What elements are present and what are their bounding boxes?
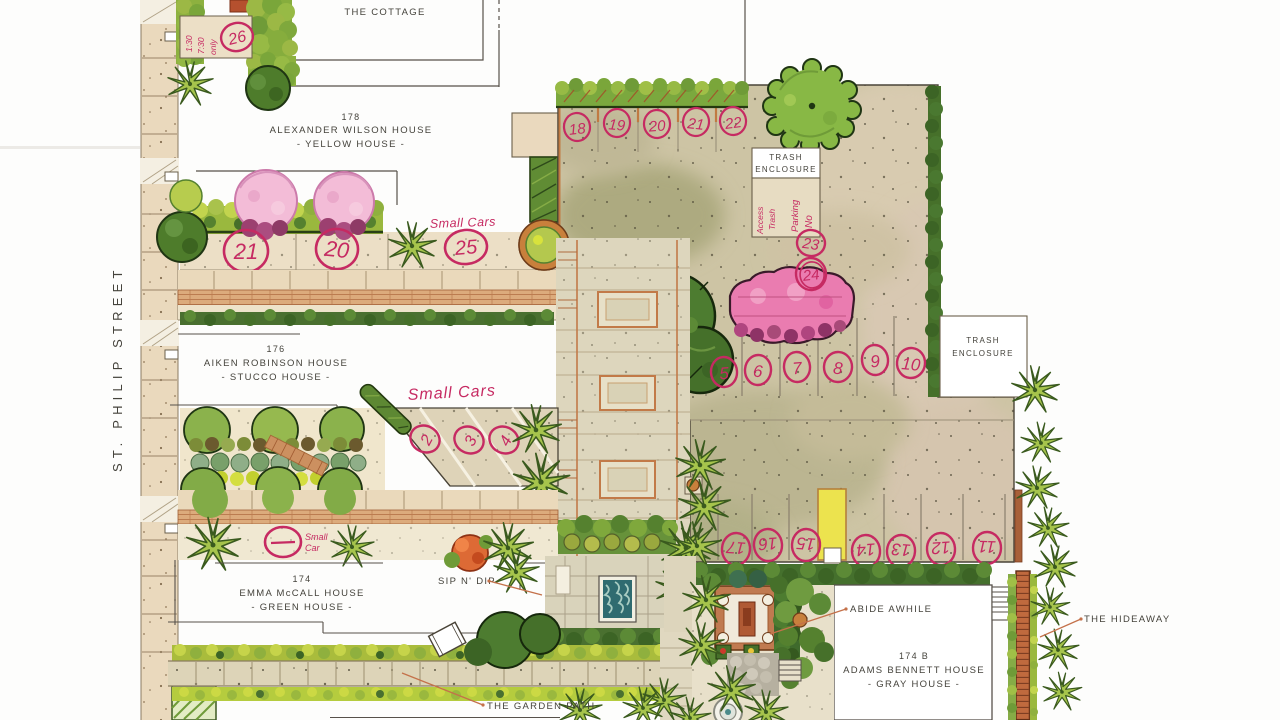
svg-text:- GRAY HOUSE -: - GRAY HOUSE -	[868, 679, 960, 690]
svg-text:15: 15	[795, 533, 816, 553]
svg-text:19: 19	[608, 116, 627, 134]
svg-text:THE HIDEAWAY: THE HIDEAWAY	[1084, 614, 1171, 625]
svg-text:8: 8	[833, 359, 844, 379]
svg-text:ALEXANDER WILSON HOUSE: ALEXANDER WILSON HOUSE	[270, 125, 433, 136]
svg-text:21: 21	[233, 239, 258, 264]
svg-text:Car: Car	[305, 543, 321, 553]
svg-text:25: 25	[453, 236, 479, 260]
svg-text:ENCLOSURE: ENCLOSURE	[755, 165, 817, 174]
svg-text:- GREEN HOUSE -: - GREEN HOUSE -	[251, 602, 352, 613]
svg-text:- YELLOW HOUSE -: - YELLOW HOUSE -	[297, 139, 405, 150]
svg-text:10: 10	[901, 354, 922, 375]
svg-text:12: 12	[930, 537, 951, 557]
svg-text:TRASH: TRASH	[769, 153, 803, 162]
svg-text:THE COTTAGE: THE COTTAGE	[344, 7, 425, 18]
svg-text:No: No	[804, 215, 815, 228]
svg-text:174: 174	[293, 574, 312, 584]
svg-text:20: 20	[647, 117, 666, 135]
svg-text:EMMA McCALL HOUSE: EMMA McCALL HOUSE	[239, 588, 364, 599]
svg-text:7:30: 7:30	[196, 37, 206, 54]
svg-text:17: 17	[725, 537, 746, 557]
svg-text:Access: Access	[755, 206, 765, 235]
svg-text:Trash: Trash	[767, 209, 777, 230]
svg-text:only: only	[208, 39, 218, 55]
svg-text:- STUCCO HOUSE -: - STUCCO HOUSE -	[222, 372, 331, 383]
svg-text:5: 5	[719, 364, 730, 384]
svg-text:178: 178	[342, 112, 361, 122]
svg-text:176: 176	[267, 344, 286, 354]
svg-text:THE GARDEN PATH: THE GARDEN PATH	[487, 701, 595, 712]
svg-text:SIP N' DIP: SIP N' DIP	[438, 576, 496, 587]
svg-text:ST. PHILIP STREET: ST. PHILIP STREET	[110, 265, 125, 472]
svg-text:13: 13	[890, 539, 911, 559]
svg-text:22: 22	[723, 114, 743, 133]
svg-text:18: 18	[568, 120, 587, 139]
svg-text:TRASH: TRASH	[966, 336, 1000, 345]
svg-text:11: 11	[978, 537, 996, 557]
svg-text:Small Cars: Small Cars	[430, 215, 497, 231]
svg-text:24: 24	[801, 266, 820, 285]
svg-text:23: 23	[800, 235, 821, 254]
svg-text:1:30: 1:30	[184, 35, 194, 52]
svg-text:Parking: Parking	[790, 199, 801, 232]
svg-text:Small: Small	[305, 532, 329, 542]
svg-text:AIKEN ROBINSON HOUSE: AIKEN ROBINSON HOUSE	[204, 358, 348, 369]
svg-text:16: 16	[757, 533, 778, 553]
svg-text:ADAMS BENNETT HOUSE: ADAMS BENNETT HOUSE	[843, 665, 985, 676]
svg-text:20: 20	[322, 236, 351, 264]
svg-text:21: 21	[686, 115, 705, 134]
svg-text:ABIDE AWHILE: ABIDE AWHILE	[850, 604, 932, 615]
svg-text:14: 14	[856, 539, 876, 559]
svg-text:174 B: 174 B	[899, 651, 929, 661]
svg-text:ENCLOSURE: ENCLOSURE	[952, 349, 1014, 358]
